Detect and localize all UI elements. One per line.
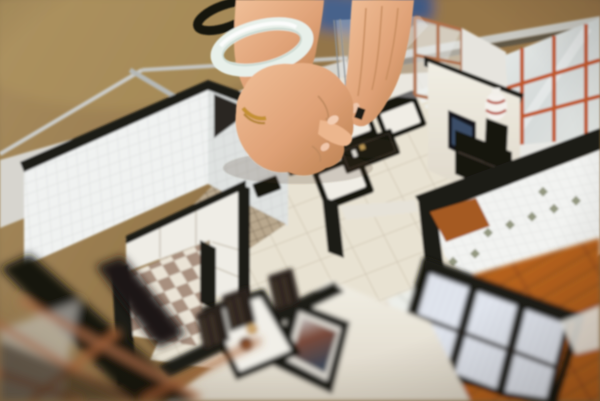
- scene-canvas: [0, 0, 600, 401]
- vignette: [0, 0, 600, 401]
- photo-miniature-apartment-model: { "meta": { "media_type": "photograph", …: [0, 0, 600, 401]
